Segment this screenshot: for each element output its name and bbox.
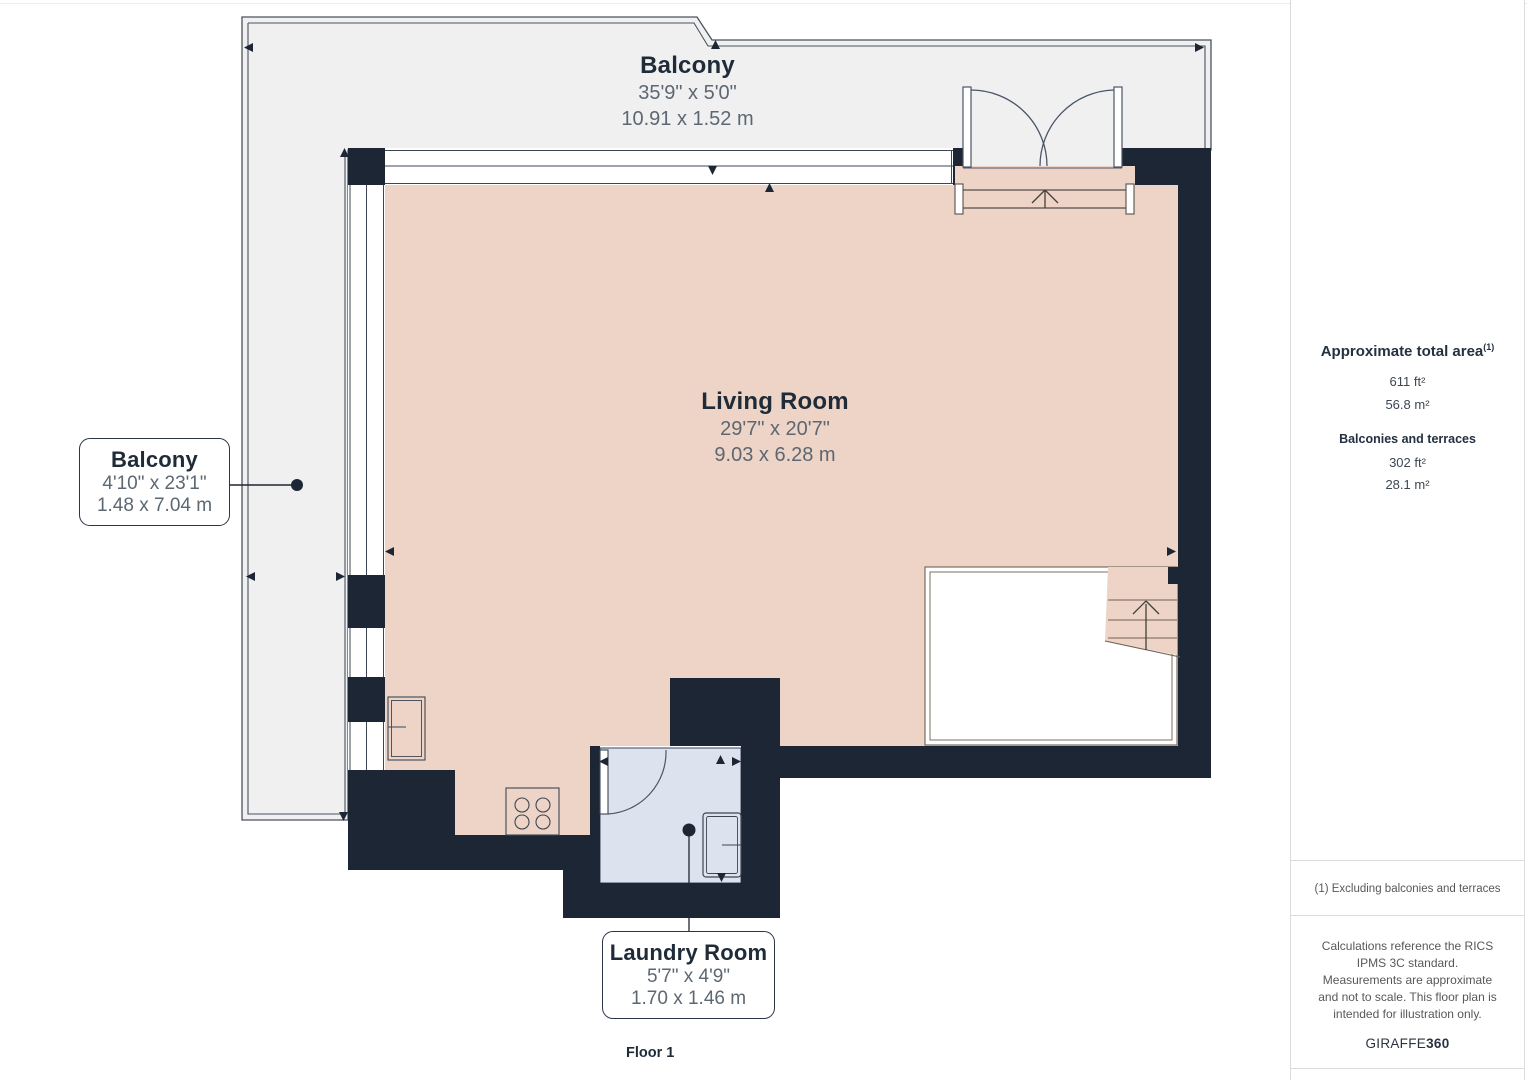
brand-suffix: 360 bbox=[1426, 1036, 1449, 1051]
window-band-top bbox=[385, 148, 953, 185]
floor-label: Floor 1 bbox=[626, 1045, 674, 1061]
stove-icon bbox=[506, 788, 559, 835]
footnote: (1) Excluding balconies and terraces bbox=[1291, 860, 1524, 916]
sink-icon bbox=[388, 697, 425, 760]
footnote-marker: (1) bbox=[1483, 342, 1494, 352]
room-dims-metric: 1.70 x 1.46 m bbox=[603, 988, 774, 1009]
balconies-title: Balconies and terraces bbox=[1291, 432, 1524, 446]
brand-name: GIRAFFE bbox=[1365, 1036, 1426, 1051]
total-area-title-text: Approximate total area bbox=[1321, 343, 1484, 360]
room-dims-imperial: 5'7" x 4'9" bbox=[603, 966, 774, 987]
total-area-m: 56.8 m² bbox=[1291, 397, 1524, 412]
room-dims-metric: 1.48 x 7.04 m bbox=[80, 495, 229, 516]
floor-plan-drawing bbox=[0, 0, 1290, 1080]
balcony-left-callout: Balcony 4'10" x 23'1" 1.48 x 7.04 m bbox=[79, 438, 230, 526]
laundry-room-callout: Laundry Room 5'7" x 4'9" 1.70 x 1.46 m bbox=[602, 931, 775, 1019]
total-area-ft: 611 ft² bbox=[1291, 374, 1524, 389]
room-dims-imperial: 4'10" x 23'1" bbox=[80, 473, 229, 494]
disclaimer-box: Calculations reference the RICS IPMS 3C … bbox=[1291, 915, 1524, 1069]
washing-machine-icon bbox=[703, 813, 741, 877]
info-panel: Approximate total area(1) 611 ft² 56.8 m… bbox=[1290, 0, 1525, 1080]
balconies-ft: 302 ft² bbox=[1291, 455, 1524, 470]
giraffe360-logo: GIRAFFE360 bbox=[1291, 1036, 1524, 1051]
room-name: Laundry Room bbox=[603, 941, 774, 965]
total-area-title: Approximate total area(1) bbox=[1291, 342, 1524, 360]
floor-plan: Balcony 35'9" x 5'0" 10.91 x 1.52 m Livi… bbox=[0, 0, 1290, 1080]
balconies-m: 28.1 m² bbox=[1291, 477, 1524, 492]
disclaimer-text: Calculations reference the RICS IPMS 3C … bbox=[1291, 916, 1524, 1023]
room-name: Balcony bbox=[80, 448, 229, 472]
stairs bbox=[925, 567, 1184, 745]
